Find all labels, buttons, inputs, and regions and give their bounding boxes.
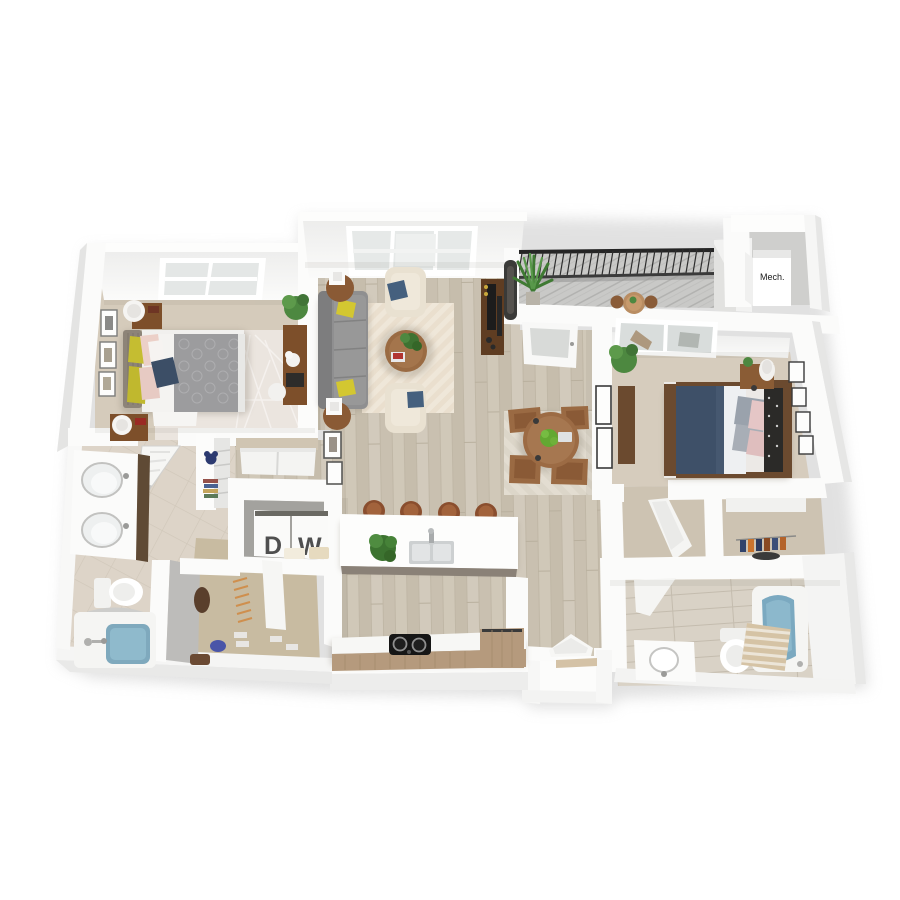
svg-text:Mech.: Mech. [760, 272, 785, 282]
svg-text:D: D [264, 532, 282, 560]
